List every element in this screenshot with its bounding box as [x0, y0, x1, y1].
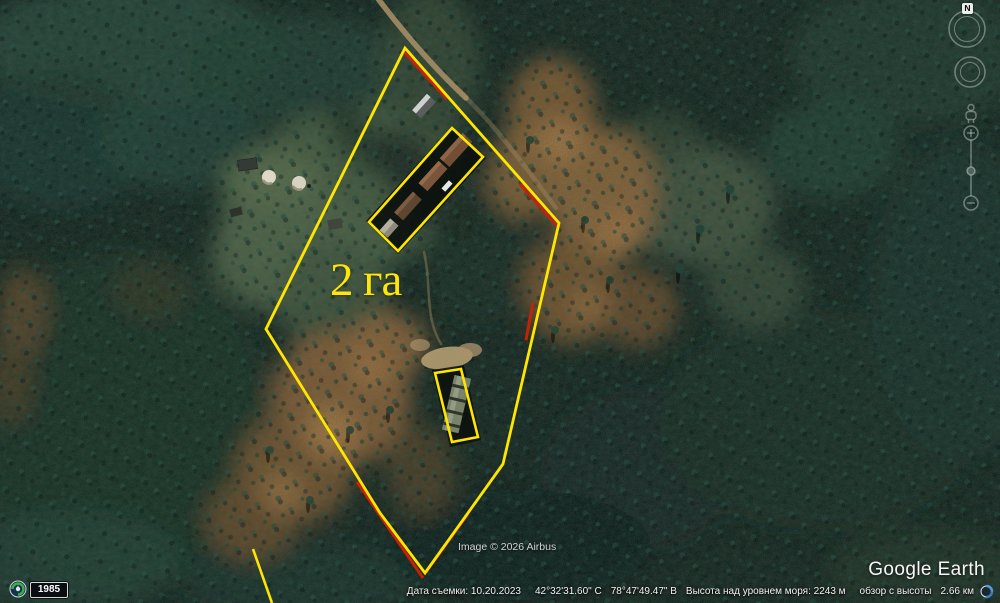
eye-altitude-label: обзор с высоты	[860, 586, 932, 597]
latitude: 42°32'31.60" С	[535, 586, 602, 597]
capture-date: Дата съемки: 10.20.2023	[407, 586, 521, 597]
satellite-imagery-viewport[interactable]	[0, 0, 1000, 603]
google-earth-logo: Google Earth	[868, 559, 985, 581]
compass-north-badge[interactable]: N	[962, 3, 973, 14]
imagery-attribution: Image © 2026 Airbus	[458, 541, 556, 553]
area-measurement-label: 2 га	[330, 257, 401, 304]
historical-imagery-clock-icon[interactable]	[9, 580, 27, 598]
historical-imagery-year[interactable]: 1985	[30, 582, 68, 598]
streaming-progress-icon	[979, 584, 994, 599]
status-bar: Дата съемки: 10.20.2023 42°32'31.60" С 7…	[407, 584, 994, 599]
eye-altitude-value: 2.66 км	[941, 586, 975, 597]
google-earth-window: N 2 га Image © 2026 Airbus Google Earth …	[0, 0, 1000, 603]
zoom-slider-knob[interactable]	[967, 167, 975, 175]
elevation: Высота над уровнем моря: 2243 м	[686, 586, 846, 597]
longitude: 78°47'49.47" В	[611, 586, 677, 597]
terrain-noise-texture	[0, 0, 1000, 603]
